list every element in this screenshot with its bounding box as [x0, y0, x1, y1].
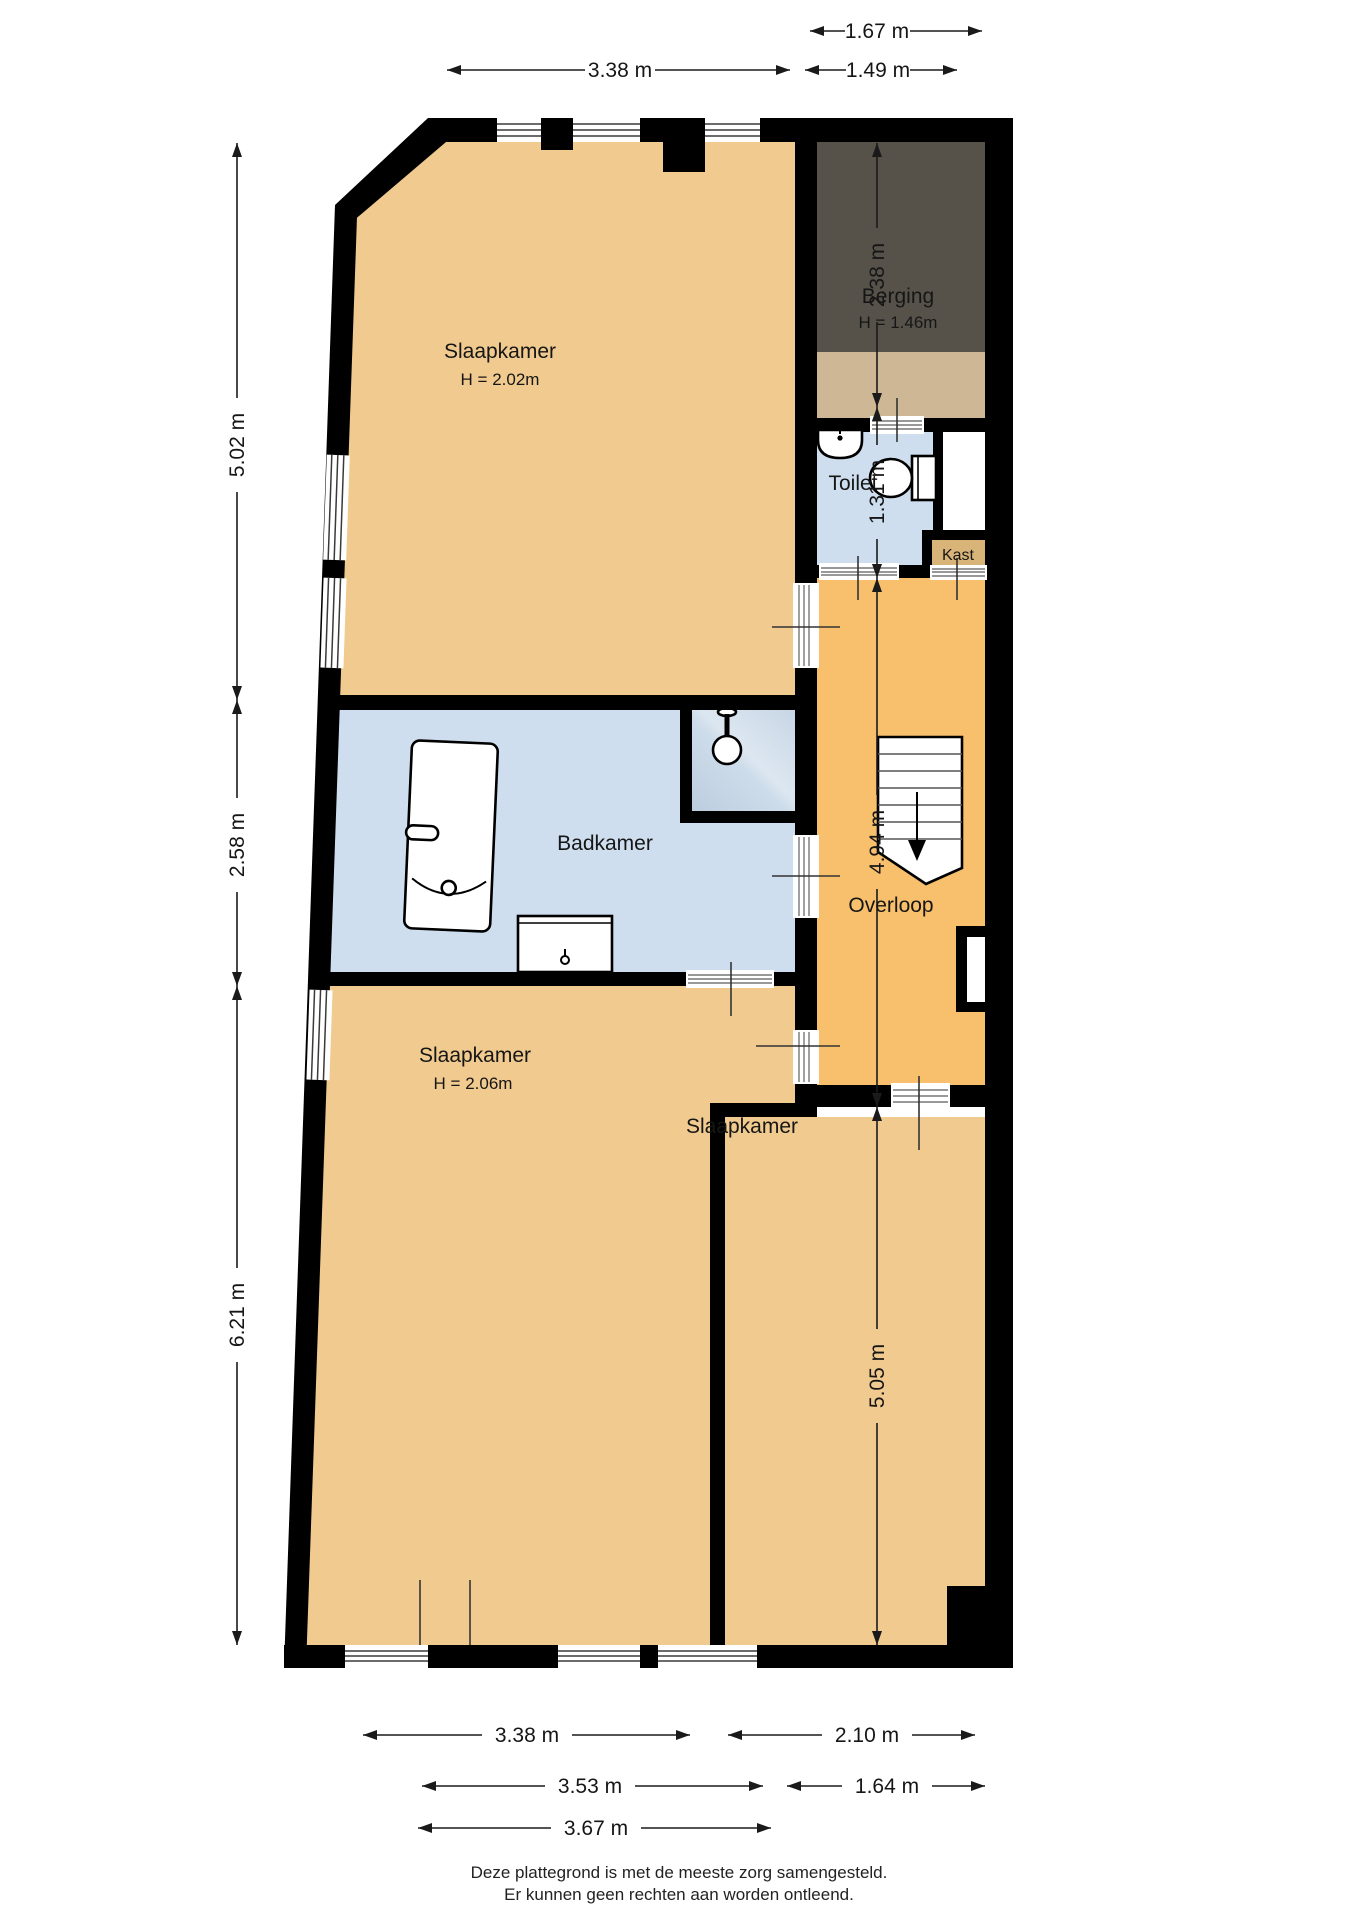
- label-slaapkamer-left-height: H = 2.06m: [434, 1074, 513, 1093]
- dim-bottom-2-10: 2.10 m: [728, 1724, 975, 1747]
- window-bottom-3: [658, 1645, 757, 1668]
- room-berging-strip: [817, 352, 985, 418]
- svg-text:1.31 m: 1.31 m: [866, 460, 889, 524]
- wall-recess-bottom-band: [922, 530, 985, 540]
- label-slaapkamer-left: Slaapkamer: [419, 1044, 531, 1067]
- shower-area: [692, 708, 797, 811]
- dim-bottom-1-64: 1.64 m: [787, 1775, 985, 1798]
- shower-floor: [692, 710, 797, 811]
- wall-shower-south: [680, 811, 797, 823]
- toilet-recess: [943, 432, 985, 530]
- floor-plan-canvas: Slaapkamer H = 2.02m Berging H = 1.46m T…: [0, 0, 1358, 1920]
- dim-left-2-58: 2.58 m: [226, 700, 249, 986]
- svg-text:4.94 m: 4.94 m: [866, 810, 889, 874]
- footer: Deze plattegrond is met de meeste zorg s…: [471, 1863, 888, 1904]
- dim-bottom-3-67: 3.67 m: [418, 1817, 771, 1840]
- right-wall-niche: [967, 937, 985, 1002]
- svg-text:2.38 m: 2.38 m: [866, 243, 889, 307]
- dim-top-3-38: 3.38 m: [447, 59, 790, 82]
- label-kast: Kast: [942, 547, 975, 564]
- wall-overloop-bottom: [795, 1085, 985, 1107]
- window-left-3: [306, 990, 332, 1081]
- window-bottom-2: [558, 1645, 640, 1668]
- label-badkamer: Badkamer: [557, 832, 653, 855]
- bathtub-icon: [402, 740, 498, 932]
- svg-text:5.05 m: 5.05 m: [866, 1344, 889, 1408]
- svg-text:5.02 m: 5.02 m: [226, 413, 249, 477]
- window-top-3: [705, 118, 760, 142]
- svg-text:3.38 m: 3.38 m: [588, 59, 652, 82]
- dim-top-1-49: 1.49 m: [805, 59, 957, 82]
- wall-shower-west: [680, 710, 692, 823]
- svg-text:1.64 m: 1.64 m: [855, 1775, 919, 1798]
- dim-left-5-02: 5.02 m: [226, 143, 249, 700]
- dim-left-6-21: 6.21 m: [226, 986, 249, 1645]
- wall-se-room-west: [710, 1103, 725, 1645]
- window-left-1: [323, 455, 350, 561]
- wall-se-corner-notch: [947, 1586, 1013, 1668]
- footer-line-2: Er kunnen geen rechten aan worden ontlee…: [504, 1885, 854, 1904]
- svg-text:3.53 m: 3.53 m: [558, 1775, 622, 1798]
- window-bottom-1: [345, 1645, 428, 1668]
- toilet-sink-icon: [818, 430, 862, 458]
- svg-text:2.58 m: 2.58 m: [226, 813, 249, 877]
- svg-text:6.21 m: 6.21 m: [226, 1283, 249, 1347]
- dim-bottom-3-38: 3.38 m: [363, 1724, 690, 1747]
- dim-top-1-67: 1.67 m: [810, 20, 982, 43]
- window-left-2: [320, 578, 346, 669]
- label-berging-height: H = 1.46m: [859, 313, 938, 332]
- stairs: [878, 737, 962, 884]
- footer-line-1: Deze plattegrond is met de meeste zorg s…: [471, 1863, 888, 1882]
- wall-badkamer-top: [330, 695, 817, 710]
- svg-text:2.10 m: 2.10 m: [835, 1724, 899, 1747]
- window-top-2: [573, 118, 640, 142]
- label-slaapkamer-top-height: H = 2.02m: [461, 370, 540, 389]
- room-slaapkamer-right: [725, 1117, 985, 1645]
- room-slaapkamer-top: [332, 142, 795, 695]
- label-overloop: Overloop: [848, 894, 933, 917]
- wall-chimney-block: [663, 118, 705, 172]
- svg-text:1.67 m: 1.67 m: [845, 20, 909, 43]
- svg-text:3.67 m: 3.67 m: [564, 1817, 628, 1840]
- svg-text:3.38 m: 3.38 m: [495, 1724, 559, 1747]
- window-top-1: [497, 118, 541, 142]
- label-slaapkamer-top: Slaapkamer: [444, 340, 556, 363]
- dim-bottom-3-53: 3.53 m: [422, 1775, 763, 1798]
- shower-head-icon: [713, 736, 741, 764]
- label-slaapkamer-right: Slaapkamer: [686, 1115, 798, 1138]
- svg-text:1.49 m: 1.49 m: [846, 59, 910, 82]
- wall-right: [985, 118, 1013, 1668]
- wall-window-pier: [541, 118, 573, 150]
- washbasin-icon: [518, 916, 612, 972]
